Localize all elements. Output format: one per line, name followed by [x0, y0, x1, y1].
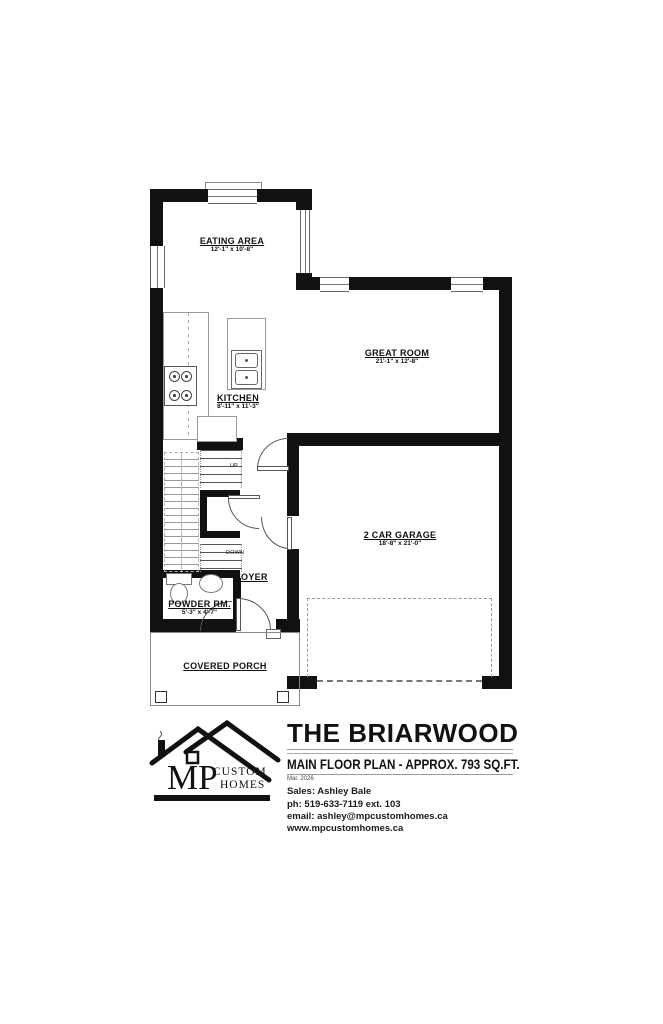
logo-underline-bar: [154, 795, 270, 801]
room-name: COVERED PORCH: [155, 661, 295, 671]
room-label-garage: 2 CAR GARAGE 18'-8" x 21'-0": [340, 530, 460, 548]
mp-custom-homes-logo: MP CUSTOM HOMES: [146, 718, 282, 810]
title-block: THE BRIARWOOD MAIN FLOOR PLAN - APPROX. …: [287, 720, 513, 836]
window-eating-right: [300, 210, 310, 273]
room-label-porch: COVERED PORCH: [155, 661, 295, 671]
title-double-rule: [287, 749, 513, 754]
kitchen-counter-corner: [197, 416, 237, 442]
room-name: KITCHEN: [178, 393, 298, 403]
room-dims: 18'-8" x 21'-0": [340, 540, 460, 547]
logo-word-custom: CUSTOM: [213, 766, 267, 778]
window-eating-top: [208, 189, 257, 204]
room-dims: 5'-3" x 4'-7": [152, 609, 247, 616]
room-name: GREAT ROOM: [337, 348, 457, 358]
room-name: FOYER: [219, 572, 284, 582]
door-leaf-garage-entry: [287, 517, 292, 550]
room-dims: 21'-1" x 12'-8": [337, 358, 457, 365]
wall-foyer-garage-a: [287, 446, 299, 516]
plan-date: Mar. 2026: [287, 776, 513, 782]
wall-greatroom-top-a: [296, 277, 320, 290]
room-label-foyer: FOYER: [219, 572, 284, 582]
burner-icon: [181, 371, 192, 382]
wall-top-a: [150, 189, 208, 202]
wall-garage-front-right: [482, 676, 512, 689]
room-dims: 8'-11" x 11'-3": [178, 403, 298, 410]
porch-post-left: [155, 691, 167, 703]
logo-mark: MP: [167, 758, 218, 797]
plan-title: THE BRIARWOOD: [287, 720, 513, 746]
double-sink-icon: [231, 350, 262, 389]
window-greatroom-1: [320, 277, 349, 292]
room-label-eating: EATING AREA 12'-1" x 10'-8": [172, 236, 292, 254]
sink-basin: [235, 353, 258, 368]
room-label-kitchen: KITCHEN 8'-11" x 11'-3": [178, 393, 298, 411]
room-label-powder: POWDER RM. 5'-3" x 4'-7": [152, 599, 247, 617]
contact-block: Sales: Ashley Bale ph: 519-633-7119 ext.…: [287, 786, 513, 835]
room-label-great: GREAT ROOM 21'-1" x 12'-8": [337, 348, 457, 366]
room-name: 2 CAR GARAGE: [340, 530, 460, 540]
window-eating-left: [150, 246, 165, 288]
stair-down-label: DOWN: [226, 550, 244, 556]
wall-garage-divider: [287, 433, 499, 446]
garage-parking-dashed: [307, 598, 492, 677]
plan-subtitle-wrap: MAIN FLOOR PLAN - APPROX. 793 SQ.FT.: [287, 757, 513, 772]
porch-post-right: [277, 691, 289, 703]
wall-left-lower: [150, 288, 163, 632]
floor-plan-sheet: UP DOWN EATING AREA 12'-1" x 10'-8": [0, 0, 663, 1024]
logo-word-homes: HOMES: [220, 779, 265, 791]
door-arc-garage-entry: [261, 517, 290, 549]
room-name: EATING AREA: [172, 236, 292, 246]
stair-flight-down: [200, 544, 242, 572]
room-name: POWDER RM.: [152, 599, 247, 609]
wall-corner-ne-eating: [296, 189, 312, 210]
wall-greatroom-top-b: [349, 277, 451, 290]
plan-subtitle: MAIN FLOOR PLAN - APPROX. 793 SQ.FT.: [287, 757, 513, 772]
phone-number: ph: 519-633-7119 ext. 103: [287, 799, 513, 811]
burner-icon: [169, 371, 180, 382]
website-url: www.mpcustomhomes.ca: [287, 823, 513, 835]
sales-contact: Sales: Ashley Bale: [287, 786, 513, 798]
garage-door-dashed-line: [317, 680, 482, 682]
email-address: email: ashley@mpcustomhomes.ca: [287, 811, 513, 823]
stair-flight-up: [200, 450, 242, 488]
door-leaf-greatroom: [257, 466, 289, 471]
stair-up-label: UP: [230, 463, 238, 469]
stair-guide-line: [181, 452, 182, 572]
sink-basin: [235, 370, 258, 385]
room-dims: 12'-1" x 10'-8": [172, 246, 292, 253]
wall-right-exterior: [499, 277, 512, 689]
subtitle-rule: [287, 774, 513, 775]
door-arc-greatroom: [257, 438, 288, 469]
window-greatroom-2: [451, 277, 483, 292]
